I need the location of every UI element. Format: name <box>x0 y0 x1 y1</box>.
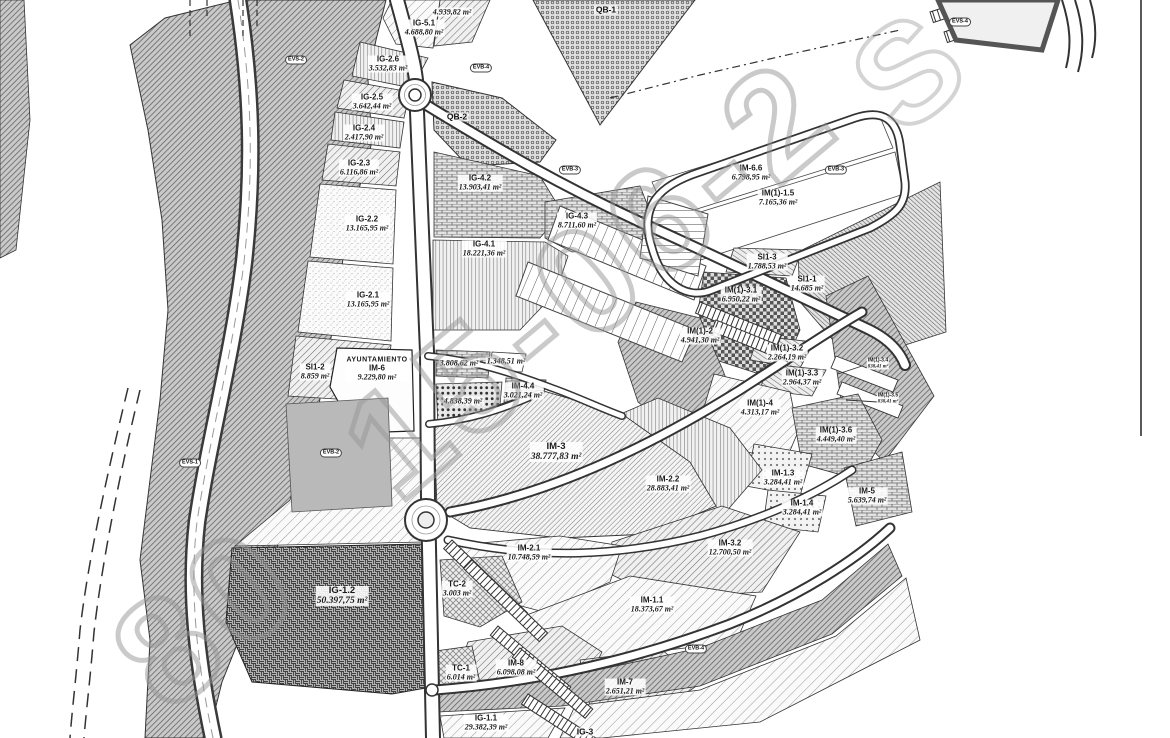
label-si1-2: SI1-28.859 m² <box>300 364 331 381</box>
label-im1-2: IM(1)-24.941,30 m² <box>680 328 721 345</box>
tag-evb-3-east: EVB-3 <box>825 166 847 175</box>
label-im-1-1: IM-1.118.373,67 m² <box>630 597 675 614</box>
tag-evb-4-north: EVB-4 <box>470 64 492 73</box>
label-im1-3-2: IM(1)-3.22.264,19 m² <box>767 345 808 362</box>
label-tc-2: TC-23.003 m² <box>442 581 473 598</box>
label-im1-1-5: IM(1)-1.57.165,36 m² <box>758 190 799 207</box>
label-ig-4-3: IG-4.38.711,60 m² <box>557 213 597 230</box>
label-ig-3: IG-3 <box>575 728 596 737</box>
label-ayuntamiento-im-6: AYUNTAMIENTOIM-69.229,80 m² <box>345 357 408 382</box>
label-im1-3-5: IM(1)-3.5838,41 m² <box>877 394 899 405</box>
label-ig-4-1: IG-4.118.221,36 m² <box>462 241 507 258</box>
label-im-5: IM-55.639,74 m² <box>847 488 888 505</box>
corner-curves <box>1062 0 1095 72</box>
label-ig-1-1: IG-1.129.382,39 m² <box>464 715 509 732</box>
label-ig-2-5: IG-2.53.642,44 m² <box>352 94 393 111</box>
label-ig-5-1: IG-5.14.688,80 m² <box>404 20 445 37</box>
label-im1-3-3: IM(1)-3.32.964,37 m² <box>782 370 823 387</box>
tag-evs-2: EVS-2 <box>285 56 307 65</box>
label-ig-2-1: IG-2.113.165,95 m² <box>346 292 391 309</box>
label-ig-2-2: IG-2.213.165,95 m² <box>345 216 390 233</box>
label-im1-3-6: IM(1)-3.64.449,40 m² <box>816 427 857 444</box>
label-ig-2-3: IG-2.36.116,86 m² <box>339 160 379 177</box>
label-im-7: IM-72.651,21 m² <box>605 679 646 696</box>
junction-bottom <box>426 684 438 696</box>
corner-northeast <box>938 0 1141 436</box>
shape-west-edge-strip <box>0 0 30 258</box>
tag-evb-4-south: EVB-4 <box>685 645 707 654</box>
shape-qb-1 <box>533 0 695 125</box>
label-qb-1: QB-1 <box>594 6 618 15</box>
label-im-4-4: IM-4.43.021,24 m² <box>503 383 544 400</box>
roundabout-middle <box>405 499 447 541</box>
label-ig-1-2: IG-1.250.397,75 m² <box>316 586 369 606</box>
label-qb-2: QB-2 <box>445 113 469 122</box>
tag-evs-4: EVS-4 <box>949 18 971 27</box>
label-area-1348: 1.348,51 m² <box>486 357 527 366</box>
label-im-2-1: IM-2.110.748,59 m² <box>507 545 552 562</box>
label-im1-4: IM(1)-44.313,17 m² <box>740 400 781 417</box>
label-si1-3: SI1-31.788,53 m² <box>747 254 788 271</box>
tag-evb-3-west: EVB-3 <box>559 166 581 175</box>
tag-evs-1: EVS-1 <box>179 459 201 468</box>
label-im1-3-1: IM(1)-3.16.950,22 m² <box>721 287 762 304</box>
label-im-2-2: IM-2.228.883,41 m² <box>646 476 691 493</box>
label-im-6-6: IM-6.66.798,95 m² <box>731 165 772 182</box>
shape-ig-4-2 <box>434 152 562 238</box>
zoning-plan-scan: 80 15-06-2 S 4.939,82 m² IG-5.14.688,80 … <box>0 0 1170 738</box>
label-ig-2-4: IG-2.42.417,90 m² <box>344 125 385 142</box>
label-im1-3-4: IM(1)-3.4838,41 m² <box>867 359 889 370</box>
roundabout-top <box>399 79 431 111</box>
zoning-map-drawing <box>0 0 1170 738</box>
label-im-8: IM-86.098,08 m² <box>496 660 537 677</box>
label-ig-2-6: IG-2.63.532,83 m² <box>368 56 409 73</box>
label-area-4838: 4.838,39 m² <box>443 397 484 406</box>
label-area-4939: 4.939,82 m² <box>432 8 473 17</box>
shape-ig-1-2 <box>226 544 426 694</box>
label-im-3-2: IM-3.212.700,50 m² <box>708 540 753 557</box>
label-im-3: IM-338.777,83 m² <box>530 442 583 462</box>
label-si1-1: SI1-114.685 m² <box>790 276 825 293</box>
label-area-3808: 3.808,62 m² <box>439 359 480 368</box>
label-im-1-4: IM-1.43.284,41 m² <box>782 500 823 517</box>
tag-evb-2: EVB-2 <box>320 449 342 458</box>
label-ig-4-2: IG-4.213.903,41 m² <box>458 175 503 192</box>
label-tc-1: TC-16.014 m² <box>446 665 477 682</box>
label-im-1-3: IM-1.33.284,41 m² <box>763 470 804 487</box>
